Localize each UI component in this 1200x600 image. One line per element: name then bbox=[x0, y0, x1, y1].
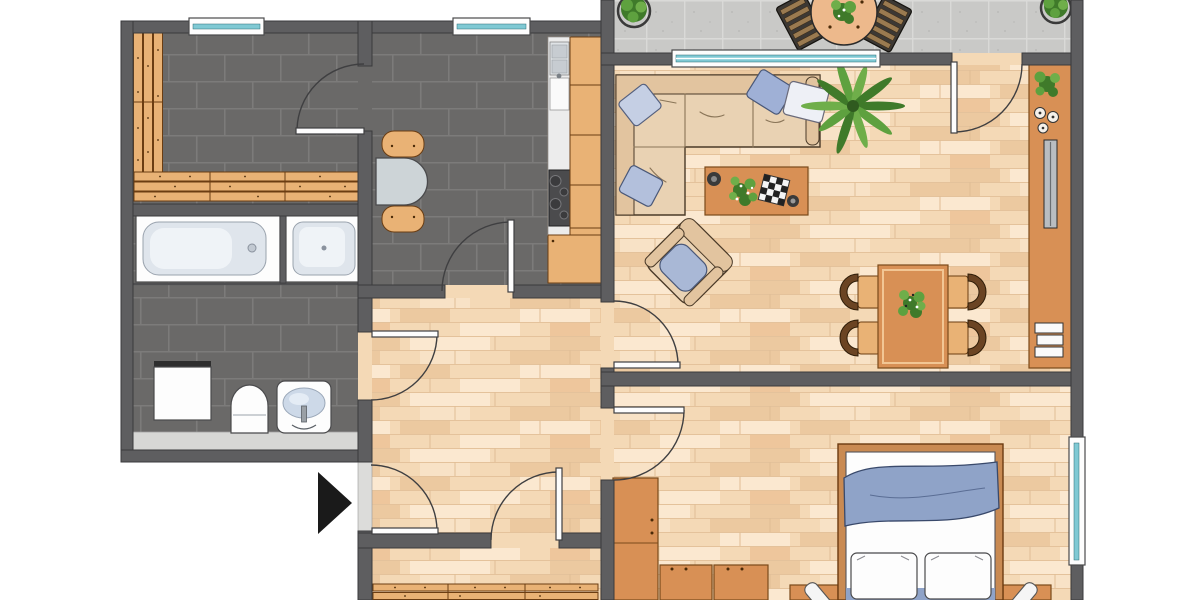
threshold bbox=[358, 66, 372, 131]
dining-chair bbox=[840, 274, 880, 310]
wall-bath-bottom bbox=[121, 450, 372, 462]
kitchen-table bbox=[376, 158, 427, 205]
dining-chair bbox=[840, 320, 880, 356]
double-bed bbox=[838, 444, 1003, 600]
threshold bbox=[952, 53, 1022, 65]
kitchen-table-set bbox=[376, 131, 427, 232]
floor-plan-page bbox=[0, 0, 1200, 600]
threshold bbox=[445, 285, 513, 298]
threshold bbox=[358, 332, 372, 400]
tub-shower-divider bbox=[280, 215, 286, 283]
bed-pillow bbox=[925, 553, 991, 599]
books bbox=[1035, 323, 1063, 357]
entrance-arrow-icon bbox=[318, 472, 352, 534]
bed-pillow bbox=[851, 553, 917, 599]
entrance-threshold bbox=[358, 462, 372, 531]
sink bbox=[277, 381, 331, 433]
dining-chair bbox=[946, 274, 986, 310]
dining-chair bbox=[946, 320, 986, 356]
faucet bbox=[302, 406, 307, 422]
shower bbox=[286, 215, 362, 282]
bath-counter-shelf bbox=[133, 432, 358, 450]
wall-sauna-divider bbox=[133, 204, 358, 216]
kitchen-counter bbox=[548, 37, 602, 283]
window-sauna bbox=[189, 18, 264, 35]
kitchen-chair bbox=[382, 131, 424, 157]
shower-drain bbox=[322, 246, 327, 251]
floor-plan bbox=[0, 0, 1200, 600]
threshold bbox=[491, 533, 559, 548]
stove bbox=[549, 170, 570, 226]
wall-living-bedroom bbox=[601, 372, 1083, 386]
chessboard bbox=[758, 174, 790, 206]
coffee-table bbox=[705, 167, 808, 215]
tv bbox=[1044, 140, 1057, 228]
wall-mid-vertical bbox=[601, 0, 614, 302]
kitchen-chair bbox=[382, 206, 424, 232]
tub-drain bbox=[248, 244, 256, 252]
wall-left bbox=[121, 21, 133, 462]
washing-machine bbox=[154, 361, 211, 420]
bathtub bbox=[136, 215, 280, 282]
radiator-slats bbox=[373, 584, 598, 600]
window-kitchen bbox=[453, 18, 530, 35]
toilet bbox=[231, 385, 268, 433]
window-balcony bbox=[672, 50, 880, 67]
threshold bbox=[601, 408, 614, 480]
wall-right bbox=[1071, 0, 1083, 437]
sideboard bbox=[1029, 62, 1071, 368]
window-bedroom bbox=[1069, 437, 1085, 565]
threshold bbox=[601, 302, 614, 368]
